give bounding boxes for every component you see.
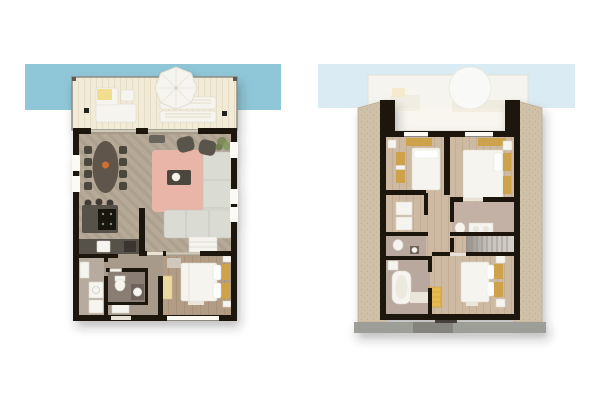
mustard-bench bbox=[406, 138, 432, 146]
pillow bbox=[414, 150, 438, 158]
sliding-door-glass bbox=[166, 253, 200, 255]
window bbox=[465, 132, 493, 137]
window bbox=[404, 132, 428, 137]
sideboard bbox=[189, 237, 217, 252]
pillow bbox=[213, 283, 221, 298]
corner-post bbox=[233, 77, 237, 81]
outdoor-sofa bbox=[96, 104, 136, 122]
nightstand bbox=[496, 255, 505, 263]
shelving bbox=[80, 262, 89, 278]
nightstand bbox=[223, 256, 231, 262]
dining-chair bbox=[84, 182, 92, 190]
ghost-parasol bbox=[449, 67, 491, 109]
gutter-dark-segment bbox=[413, 322, 453, 333]
sink-basin bbox=[133, 288, 141, 296]
dining-chair bbox=[84, 170, 92, 178]
wc-floor bbox=[386, 234, 426, 258]
floor-plan-right bbox=[318, 64, 575, 333]
bed-mat bbox=[188, 301, 204, 305]
window bbox=[230, 207, 238, 222]
toilet bbox=[115, 279, 125, 291]
building-upper-floor bbox=[354, 100, 546, 333]
side-table bbox=[121, 90, 134, 101]
door-threshold bbox=[147, 252, 163, 255]
ghost-cushion bbox=[392, 88, 405, 97]
pillow bbox=[494, 153, 502, 171]
nightstand bbox=[223, 301, 231, 307]
pale-yellow-cabinet bbox=[162, 276, 172, 299]
toilet bbox=[393, 240, 403, 251]
sun-lounger bbox=[160, 111, 216, 122]
dining-chair bbox=[119, 158, 127, 166]
headboard-cushion bbox=[222, 264, 230, 280]
parasol bbox=[155, 67, 197, 109]
orange-centerpiece bbox=[102, 162, 109, 169]
corner-sink bbox=[388, 261, 398, 270]
headboard-cushion bbox=[494, 264, 503, 279]
double-bed bbox=[461, 262, 489, 302]
kitchen-sink bbox=[97, 241, 110, 252]
floor-plans-image bbox=[0, 0, 600, 400]
double-bed bbox=[181, 263, 217, 301]
bathtub-basin bbox=[396, 275, 408, 299]
lantern bbox=[222, 111, 227, 116]
headboard-cushion bbox=[503, 153, 511, 171]
sink-basin bbox=[412, 247, 417, 252]
bathroom-door-leaf bbox=[110, 269, 121, 272]
doormat bbox=[149, 135, 165, 143]
toilet bbox=[455, 223, 465, 234]
door-threshold bbox=[463, 198, 483, 201]
mustard-nightstand bbox=[396, 170, 405, 183]
washer bbox=[89, 282, 103, 298]
corner-post bbox=[72, 77, 76, 81]
dining-chair bbox=[84, 158, 92, 166]
bed-mat bbox=[466, 302, 478, 306]
dining-chair bbox=[119, 146, 127, 154]
pillow bbox=[487, 265, 494, 279]
wardrobe-box bbox=[396, 202, 412, 215]
dresser bbox=[388, 140, 396, 148]
cooktop bbox=[98, 209, 116, 230]
entry-threshold bbox=[111, 316, 131, 320]
window bbox=[72, 155, 80, 171]
terrace bbox=[72, 67, 237, 130]
window bbox=[72, 176, 80, 192]
side-shelf bbox=[396, 166, 405, 170]
headboard-cushion bbox=[222, 283, 230, 299]
window bbox=[230, 189, 238, 204]
headboard-cushion bbox=[503, 176, 511, 194]
bar-stool bbox=[96, 199, 103, 206]
bath-mat bbox=[410, 292, 428, 303]
pillow bbox=[213, 265, 221, 280]
sofa-seat bbox=[164, 210, 232, 238]
kitchen-appliance bbox=[124, 241, 136, 252]
dining-chair bbox=[84, 146, 92, 154]
floor-plan-left bbox=[25, 64, 281, 321]
wardrobe-box bbox=[396, 217, 412, 230]
lantern bbox=[84, 108, 89, 113]
headboard-cushion bbox=[494, 282, 503, 297]
window bbox=[230, 142, 238, 158]
coffee-table-tray bbox=[172, 173, 180, 181]
window bbox=[167, 316, 219, 321]
sliding-door-glass bbox=[148, 130, 198, 132]
dryer bbox=[89, 300, 103, 313]
mustard-bench bbox=[478, 138, 506, 146]
yellow-cushion bbox=[97, 89, 112, 100]
nightstand bbox=[496, 299, 505, 307]
mustard-nightstand bbox=[396, 152, 405, 165]
pillow bbox=[487, 282, 494, 296]
dining-chair bbox=[119, 170, 127, 178]
bedroom-dresser bbox=[167, 258, 181, 268]
sliding-door-glass bbox=[91, 130, 136, 132]
building-ground-floor bbox=[72, 67, 238, 321]
dining-chair bbox=[119, 182, 127, 190]
nightstand bbox=[503, 141, 512, 150]
door-threshold bbox=[450, 253, 466, 256]
